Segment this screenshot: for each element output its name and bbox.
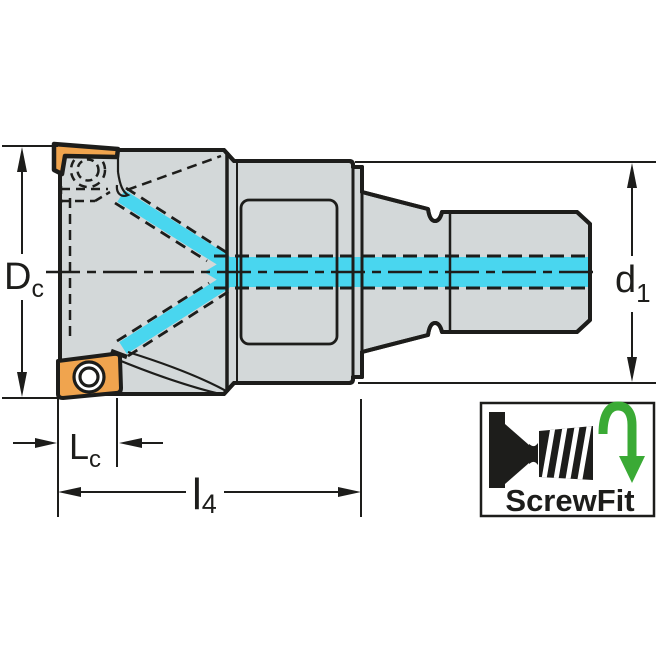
technical-drawing: Dc d1 Lc l4 bbox=[0, 0, 666, 666]
screwfit-label: ScrewFit bbox=[505, 483, 634, 518]
tool-flange-bar bbox=[489, 412, 505, 488]
tool-neck bbox=[529, 443, 538, 465]
screwfit-badge: ScrewFit bbox=[481, 403, 654, 518]
insert-screw-hole-inner bbox=[80, 368, 98, 386]
